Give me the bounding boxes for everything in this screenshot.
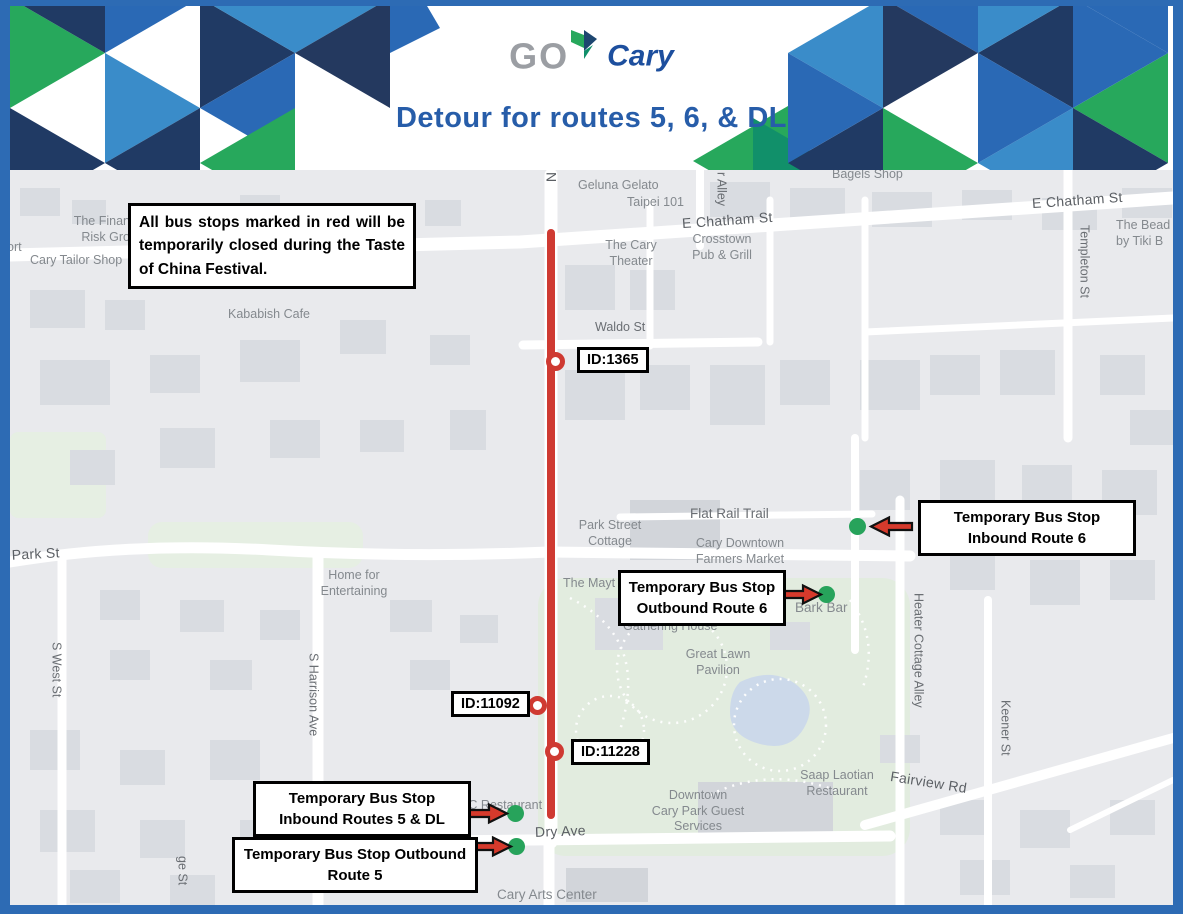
map-label-great-lawn-pavilion: Great Lawn Pavilion xyxy=(678,647,758,678)
closed-stop-marker-1365 xyxy=(546,352,565,371)
map-label-s-harrison-ave: S Harrison Ave xyxy=(305,653,321,749)
map-label-cary-tailor: Cary Tailor Shop xyxy=(30,253,122,269)
map-label-downtown-cary-park: Downtown Cary Park Guest Services xyxy=(642,788,754,835)
map-label-dry-ave: Dry Ave xyxy=(535,822,586,841)
map-label-ort: ort xyxy=(10,240,22,256)
map-label-farmers-market: Cary Downtown Farmers Market xyxy=(684,536,796,567)
map-label-ge-st: ge St xyxy=(174,856,190,905)
arrow-left-icon xyxy=(868,515,914,543)
map-label-templeton-st: Templeton St xyxy=(1076,225,1092,325)
header: GOCary Detour for routes 5, 6, & DL xyxy=(10,6,1173,170)
callout-outbound-route-6: Temporary Bus Stop Outbound Route 6 xyxy=(618,570,786,626)
map-label-r-alley: r Alley xyxy=(713,172,729,206)
map-label-s-west-st: S West St xyxy=(48,642,64,708)
detour-route-line xyxy=(547,229,555,819)
stop-id-box-1365: ID:1365 xyxy=(577,347,649,373)
map-label-financial-risk: The Finan Risk Gro xyxy=(58,214,130,245)
map-label-keener-st: Keener St xyxy=(997,700,1013,772)
callout-inbound-routes-5-dl: Temporary Bus Stop Inbound Routes 5 & DL xyxy=(253,781,471,837)
callout-inbound-route-6: Temporary Bus Stop Inbound Route 6 xyxy=(918,500,1136,556)
map-label-flat-rail-trail: Flat Rail Trail xyxy=(690,506,769,523)
map-label-the-mayton: The Mayt xyxy=(563,576,615,592)
map-label-saap-laotian: Saap Laotian Restaurant xyxy=(790,768,884,799)
closed-stop-marker-11092 xyxy=(528,696,547,715)
map-label-crosstown: Crosstown Pub & Grill xyxy=(678,232,766,263)
stop-id-box-11228: ID:11228 xyxy=(571,739,650,765)
map-label-cary-theater: The Cary Theater xyxy=(595,238,667,269)
map-label-n-street: N xyxy=(542,172,560,182)
detour-flyer: GOCary Detour for routes 5, 6, & DL xyxy=(0,0,1183,914)
logo-go-text: GO xyxy=(509,36,569,77)
map-label-taipei-101: Taipei 101 xyxy=(627,195,684,211)
map-label-bagels-shop: Bagels Shop xyxy=(832,170,903,183)
map-label-waldo-st: Waldo St xyxy=(595,320,645,336)
map-label-kababish: Kababish Cafe xyxy=(228,307,310,323)
callout-outbound-route-5: Temporary Bus Stop Outbound Route 5 xyxy=(232,837,478,893)
page-title: Detour for routes 5, 6, & DL xyxy=(10,102,1173,135)
map-label-park-street-cottage: Park Street Cottage xyxy=(570,518,650,549)
closed-stop-marker-11228 xyxy=(545,742,564,761)
stop-id-box-11092: ID:11092 xyxy=(451,691,530,717)
map-label-heater-cottage-alley: Heater Cottage Alley xyxy=(910,593,926,793)
map-label-bead-tiki: The Bead by Tiki B xyxy=(1116,218,1173,249)
logo-cary-text: Cary xyxy=(607,40,674,73)
gocary-logo: GOCary xyxy=(10,30,1173,83)
map-label-w-park-st: W Park St xyxy=(10,544,60,565)
closure-notice: All bus stops marked in red will be temp… xyxy=(128,203,416,289)
map-label-geluna-gelato: Geluna Gelato xyxy=(578,178,659,194)
map-label-home-entertaining: Home for Entertaining xyxy=(310,568,398,599)
logo-chevron-icon xyxy=(571,30,597,69)
map-label-cary-arts-center: Cary Arts Center xyxy=(497,887,597,904)
temp-stop-dot-inbound-6 xyxy=(849,518,866,535)
detour-map: N r Alley Geluna Gelato Taipei 101 E Cha… xyxy=(10,170,1173,905)
